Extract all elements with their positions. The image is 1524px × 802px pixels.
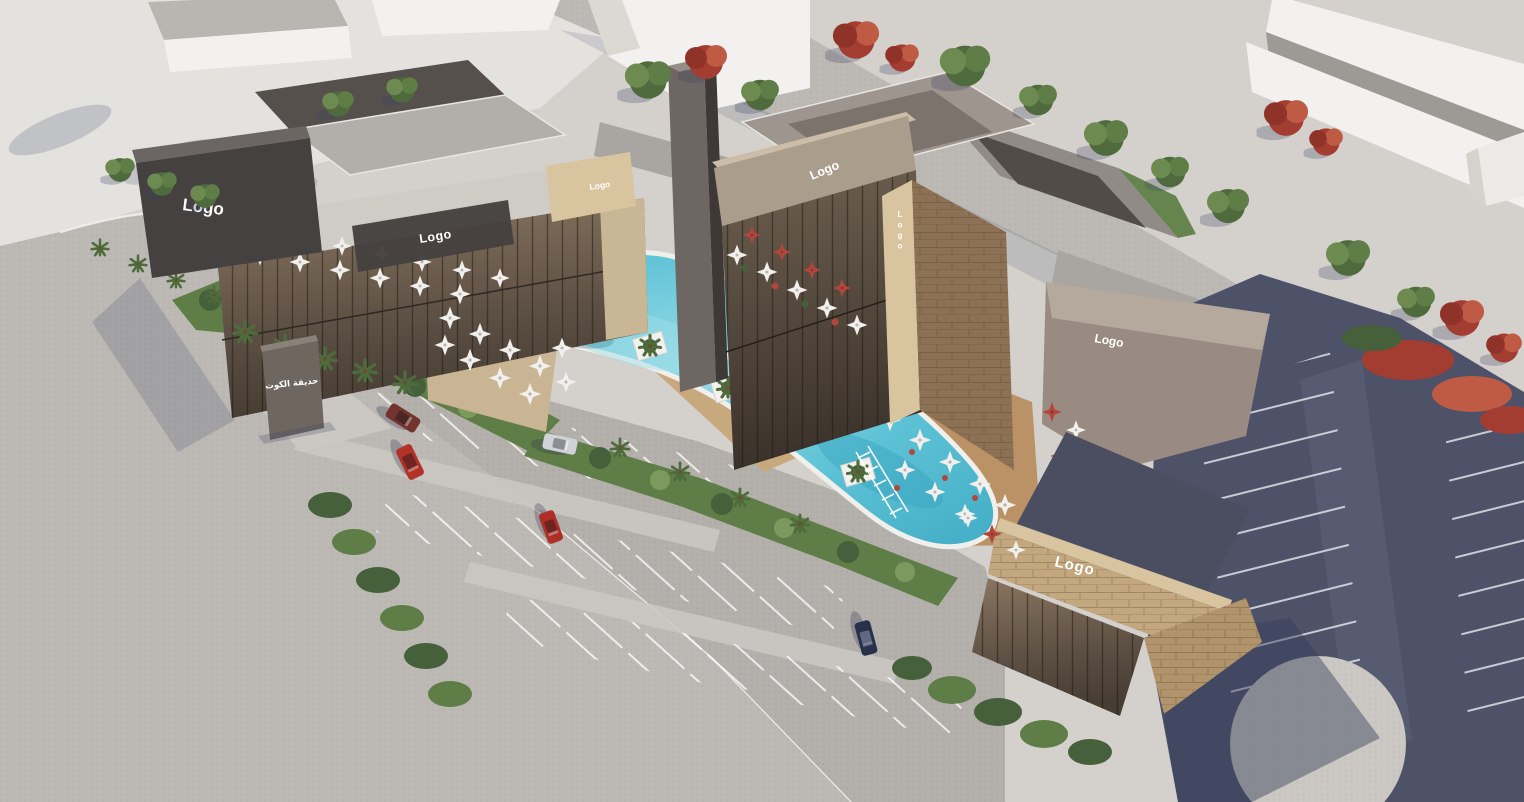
red-shrubs — [1432, 376, 1512, 412]
green-shrubs — [1342, 325, 1402, 351]
center-vertical-logo-sign: Logo — [896, 210, 905, 252]
plaza-rendering: Logo Logo Logo — [0, 0, 1524, 802]
stone-pier — [600, 198, 648, 340]
aerial-render-image: Logo Logo Logo — [0, 0, 1524, 802]
left-wedge-sign: Logo — [132, 126, 322, 278]
